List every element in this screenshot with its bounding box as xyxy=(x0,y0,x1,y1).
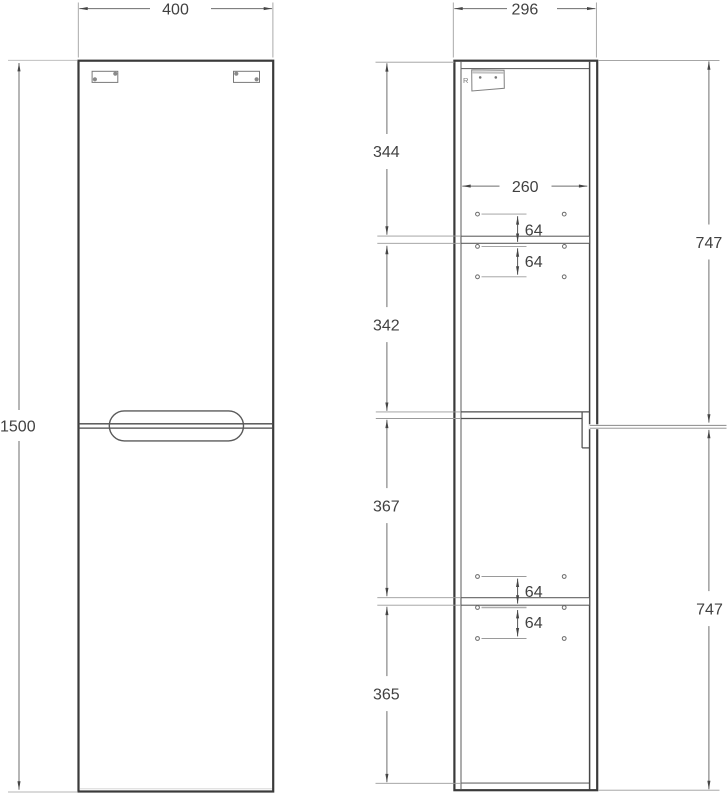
svg-text:365: 365 xyxy=(373,686,400,703)
svg-text:R: R xyxy=(463,76,469,85)
svg-text:342: 342 xyxy=(373,317,400,334)
svg-text:64: 64 xyxy=(525,223,543,240)
svg-text:296: 296 xyxy=(512,1,539,18)
svg-text:747: 747 xyxy=(696,235,723,252)
svg-text:64: 64 xyxy=(525,615,543,632)
svg-text:344: 344 xyxy=(373,144,400,161)
svg-text:367: 367 xyxy=(373,498,400,515)
svg-text:1500: 1500 xyxy=(0,419,36,436)
svg-text:747: 747 xyxy=(696,601,723,618)
svg-text:400: 400 xyxy=(162,1,189,18)
svg-text:64: 64 xyxy=(525,584,543,601)
svg-text:260: 260 xyxy=(512,179,539,196)
svg-text:64: 64 xyxy=(525,254,543,271)
